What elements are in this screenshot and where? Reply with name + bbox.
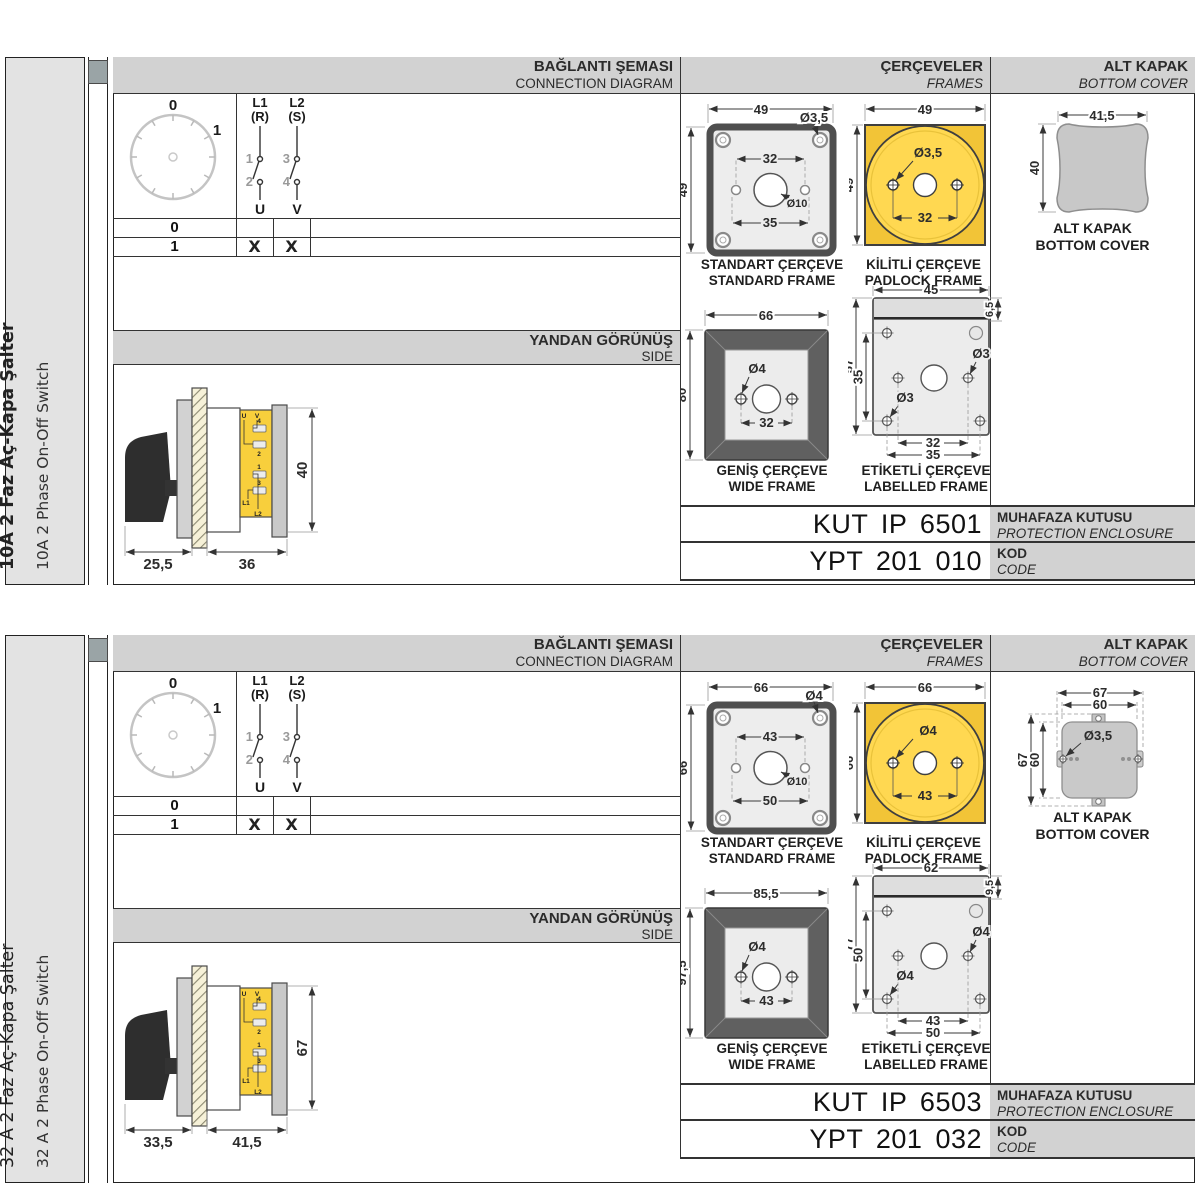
dim-hole-left: Ø4 bbox=[896, 968, 914, 983]
handle-shaft bbox=[165, 1058, 177, 1074]
header-frames-tr: ÇERÇEVELER bbox=[683, 635, 983, 654]
dim-hole: Ø3,5 bbox=[914, 145, 942, 160]
dim-hole: Ø4 bbox=[748, 361, 766, 376]
dial-pos-1: 1 bbox=[213, 700, 221, 717]
panel-slot-10a: 10A 2 Faz Aç-Kapa Şalter 10A 2 Phase On-… bbox=[5, 57, 1195, 585]
wide-frame-label: GENİŞ ÇERÇEVE WIDE FRAME bbox=[682, 1041, 862, 1073]
mounting-panel bbox=[192, 388, 207, 548]
dim-height: 49 bbox=[849, 178, 856, 192]
product-panel: 32 A 2 Faz Aç-Kapa Şalter 32 A 2 Phase O… bbox=[5, 635, 1195, 1183]
state-row-0-u bbox=[236, 218, 273, 237]
padlock-frame-drawing: 49 49 Ø3,5 32 bbox=[849, 97, 995, 269]
switch-handle bbox=[125, 1010, 171, 1100]
dim-strip: 9,5 bbox=[984, 880, 996, 895]
sv-4: 4 bbox=[257, 418, 261, 425]
dim-width: 66 bbox=[759, 308, 773, 323]
front-plate bbox=[177, 400, 192, 538]
center-hole bbox=[921, 943, 947, 969]
product-panel: 10A 2 Faz Aç-Kapa Şalter 10A 2 Phase On-… bbox=[5, 57, 1195, 585]
dim-width: 62 bbox=[924, 863, 938, 875]
phase-r-label: (R) bbox=[251, 109, 269, 124]
dim-inner-height: 60 bbox=[1027, 753, 1042, 767]
enclosure-meta-tr: MUHAFAZA KUTUSU bbox=[997, 510, 1195, 526]
code-meta-tr: KOD bbox=[997, 1124, 1195, 1140]
labelled-frame-label-en: LABELLED FRAME bbox=[851, 1057, 1001, 1073]
labelled-frame-label: ETİKETLİ ÇERÇEVE LABELLED FRAME bbox=[851, 463, 1001, 495]
dim-front: 25,5 bbox=[143, 556, 172, 573]
header-frames-en: FRAMES bbox=[683, 654, 983, 669]
dial-pos-0: 0 bbox=[169, 675, 177, 692]
end-cap bbox=[272, 405, 287, 537]
dim-width: 49 bbox=[754, 102, 768, 117]
wide-frame-label-en: WIDE FRAME bbox=[682, 1057, 862, 1073]
catalog-page: 10A 2 Faz Aç-Kapa Şalter 10A 2 Phase On-… bbox=[0, 0, 1200, 1200]
state-row-1-u: X bbox=[236, 237, 273, 256]
header-connection-tr: BAĞLANTI ŞEMASI bbox=[113, 635, 673, 654]
dial-diagram: 0 1 bbox=[113, 93, 236, 218]
dim-width: 66 bbox=[754, 680, 768, 695]
standard-frame-label-tr: STANDART ÇERÇEVE bbox=[682, 257, 862, 273]
state-row-0-v bbox=[273, 796, 310, 815]
enclosure-meta-tr: MUHAFAZA KUTUSU bbox=[997, 1088, 1195, 1104]
divider-line bbox=[113, 834, 680, 835]
header-frames-en: FRAMES bbox=[683, 76, 983, 91]
labelled-frame-drawing: 45 6,5 57 35 Ø3 Ø3 32 35 bbox=[848, 285, 1004, 467]
header-connection-tr: BAĞLANTI ŞEMASI bbox=[113, 57, 673, 76]
code-meta-tr: KOD bbox=[997, 546, 1195, 562]
dim-inner: 43 bbox=[759, 993, 773, 1008]
terminal-2: 2 bbox=[246, 752, 253, 767]
header-connection-en: CONNECTION DIAGRAM bbox=[113, 76, 673, 91]
label-strip-line bbox=[874, 317, 988, 320]
standard-frame-label: STANDART ÇERÇEVE STANDARD FRAME bbox=[682, 835, 862, 867]
dim-height: 40 bbox=[294, 462, 311, 479]
state-row-0-v bbox=[273, 218, 310, 237]
enclosure-code: KUT IP 6501 bbox=[680, 509, 990, 540]
side-hole bbox=[801, 764, 810, 773]
dim-inner: 43 bbox=[918, 788, 932, 803]
standard-frame-label-en: STANDARD FRAME bbox=[682, 851, 862, 867]
dim-center: Ø10 bbox=[787, 198, 808, 210]
side-view-header: YANDAN GÖRÜNÜŞ SIDE bbox=[113, 908, 680, 943]
labelled-frame-label-tr: ETİKETLİ ÇERÇEVE bbox=[851, 1041, 1001, 1057]
state-row-0-label: 0 bbox=[113, 796, 236, 815]
code-meta-en: CODE bbox=[997, 1140, 1195, 1155]
code-meta: KOD CODE bbox=[990, 543, 1195, 580]
phase-l1-label: L1 bbox=[252, 673, 267, 688]
labelled-frame-label: ETİKETLİ ÇERÇEVE LABELLED FRAME bbox=[851, 1041, 1001, 1073]
handle-shaft bbox=[165, 480, 177, 496]
output-u-label: U bbox=[255, 201, 265, 217]
center-hole bbox=[754, 752, 787, 785]
padlock-frame-label-tr: KİLİTLİ ÇERÇEVE bbox=[851, 835, 996, 851]
terminal-2: 2 bbox=[246, 174, 253, 189]
header-connection: BAĞLANTI ŞEMASI CONNECTION DIAGRAM bbox=[113, 57, 673, 93]
spine-strip bbox=[88, 635, 108, 1183]
center-hole bbox=[753, 963, 781, 991]
dim-width: 49 bbox=[918, 102, 932, 117]
label-strip bbox=[874, 877, 988, 896]
output-u-label: U bbox=[255, 779, 265, 795]
dim-inner: 43 bbox=[763, 729, 777, 744]
labelled-frame-drawing: 62 9,5 77 50 Ø4 Ø4 43 50 bbox=[848, 863, 1004, 1045]
side-view-header-en: SIDE bbox=[113, 928, 673, 942]
sv-2: 2 bbox=[257, 451, 261, 458]
wide-frame-drawing: 66 80 Ø4 32 bbox=[681, 303, 853, 470]
side-label-subtitle: 32 A 2 Phase On-Off Switch bbox=[34, 955, 52, 1168]
dim-height: 40 bbox=[1027, 161, 1042, 175]
dim-body: 36 bbox=[239, 556, 256, 573]
header-cover-en: BOTTOM COVER bbox=[993, 76, 1188, 91]
end-cap bbox=[272, 983, 287, 1115]
switch-handle bbox=[125, 432, 171, 522]
dim-center: Ø10 bbox=[787, 776, 808, 788]
side-label-subtitle: 10A 2 Phase On-Off Switch bbox=[34, 362, 52, 570]
bottom-cover-label: ALT KAPAK BOTTOM COVER bbox=[990, 809, 1195, 843]
product-code: YPT 201 032 bbox=[680, 1124, 990, 1155]
bottom-cover-label: ALT KAPAK BOTTOM COVER bbox=[990, 220, 1195, 254]
terminal-4: 4 bbox=[283, 174, 291, 189]
terminal-1: 1 bbox=[246, 729, 253, 744]
sv-l1: L1 bbox=[242, 500, 250, 507]
code-meta-en: CODE bbox=[997, 562, 1195, 577]
header-cover-tr: ALT KAPAK bbox=[993, 57, 1188, 76]
wide-frame-label-tr: GENİŞ ÇERÇEVE bbox=[682, 1041, 862, 1057]
state-row-1-v: X bbox=[273, 237, 310, 256]
standard-frame-drawing: 66 Ø4 66 43 Ø10 50 bbox=[681, 675, 853, 847]
center-hole bbox=[753, 385, 781, 413]
center-hole bbox=[914, 174, 937, 197]
side-view-header: YANDAN GÖRÜNÜŞ SIDE bbox=[113, 330, 680, 365]
spine-tab bbox=[88, 60, 108, 84]
sv-4: 4 bbox=[257, 996, 261, 1003]
dim-hole-right: Ø4 bbox=[972, 924, 990, 939]
spine-strip bbox=[88, 57, 108, 585]
header-frames-tr: ÇERÇEVELER bbox=[683, 57, 983, 76]
switch-body bbox=[207, 408, 240, 532]
side-hole bbox=[801, 186, 810, 195]
wide-frame-label-en: WIDE FRAME bbox=[682, 479, 862, 495]
padlock-frame-drawing: 66 66 Ø4 43 bbox=[849, 675, 995, 847]
dim-inner: 32 bbox=[759, 415, 773, 430]
padlock-frame-label-tr: KİLİTLİ ÇERÇEVE bbox=[851, 257, 996, 273]
bottom-cover-label-tr: ALT KAPAK bbox=[990, 220, 1195, 237]
contact-symbols bbox=[253, 126, 300, 200]
dim-hole: Ø3,5 bbox=[1084, 728, 1112, 743]
dim-height: 49 bbox=[681, 183, 690, 197]
sv-1: 1 bbox=[257, 1042, 261, 1049]
phase-s-label: (S) bbox=[288, 687, 305, 702]
side-view-header-en: SIDE bbox=[113, 350, 673, 364]
label-strip bbox=[874, 299, 988, 318]
product-code: YPT 201 010 bbox=[680, 546, 990, 577]
phase-l2-label: L2 bbox=[289, 673, 304, 688]
dim-outer: 50 bbox=[763, 793, 777, 808]
center-hole bbox=[754, 174, 787, 207]
terminal-3: 3 bbox=[283, 729, 290, 744]
state-row-1-label: 1 bbox=[113, 237, 236, 256]
dial-pos-1: 1 bbox=[213, 122, 221, 139]
terminal-3: 3 bbox=[283, 151, 290, 166]
mounting-panel bbox=[192, 966, 207, 1126]
dial-center bbox=[169, 731, 177, 739]
tab-hole bbox=[1096, 716, 1102, 722]
contact-diagram: L1 (R) L2 (S) 1 2 3 4 U V bbox=[236, 93, 316, 218]
output-v-label: V bbox=[292, 201, 302, 217]
header-cover-en: BOTTOM COVER bbox=[993, 654, 1188, 669]
standard-frame-label-en: STANDARD FRAME bbox=[682, 273, 862, 289]
terminal-4: 4 bbox=[283, 752, 291, 767]
code-meta: KOD CODE bbox=[990, 1121, 1195, 1158]
phase-l1-label: L1 bbox=[252, 95, 267, 110]
side-view-header-tr: YANDAN GÖRÜNÜŞ bbox=[113, 909, 673, 928]
header-cover: ALT KAPAK BOTTOM COVER bbox=[993, 57, 1188, 93]
side-hole bbox=[732, 186, 741, 195]
dim-hole-left: Ø3 bbox=[896, 390, 913, 405]
tab-hole bbox=[1096, 799, 1102, 805]
sv-3: 3 bbox=[257, 1058, 261, 1065]
dim-hole-right: Ø3 bbox=[972, 346, 989, 361]
side-label-title: 10A 2 Faz Aç-Kapa Şalter bbox=[0, 322, 18, 570]
contact-symbols bbox=[253, 704, 300, 778]
dim-height: 66 bbox=[849, 756, 856, 770]
side-hole bbox=[732, 764, 741, 773]
sv-2: 2 bbox=[257, 1029, 261, 1036]
dim-height: 97,5 bbox=[681, 960, 689, 985]
bottom-cover-label-tr: ALT KAPAK bbox=[990, 809, 1195, 826]
wide-frame-label-tr: GENİŞ ÇERÇEVE bbox=[682, 463, 862, 479]
labelled-frame-label-tr: ETİKETLİ ÇERÇEVE bbox=[851, 463, 1001, 479]
side-view-drawing: U V 4 2 1 3 L1 L2 67 33,5 41,5 bbox=[115, 963, 345, 1153]
side-label-bar: 10A 2 Faz Aç-Kapa Şalter 10A 2 Phase On-… bbox=[5, 57, 85, 585]
terminal-1: 1 bbox=[246, 151, 253, 166]
spine-tab bbox=[88, 638, 108, 662]
header-frames: ÇERÇEVELER FRAMES bbox=[683, 635, 983, 671]
header-connection: BAĞLANTI ŞEMASI CONNECTION DIAGRAM bbox=[113, 635, 673, 671]
side-view-header-tr: YANDAN GÖRÜNÜŞ bbox=[113, 331, 673, 350]
dim-outer: 35 bbox=[926, 447, 940, 462]
dim-inner-height: 35 bbox=[851, 370, 866, 384]
sv-l2: L2 bbox=[254, 511, 262, 518]
dim-hole: Ø4 bbox=[748, 939, 766, 954]
dim-width: 45 bbox=[924, 285, 938, 297]
dial-pos-0: 0 bbox=[169, 97, 177, 114]
dim-width: 66 bbox=[918, 680, 932, 695]
dim-hole: Ø4 bbox=[919, 723, 937, 738]
dim-width: 41,5 bbox=[1089, 109, 1114, 123]
wide-frame-label: GENİŞ ÇERÇEVE WIDE FRAME bbox=[682, 463, 862, 495]
cover-shape bbox=[1057, 124, 1148, 212]
header-frames: ÇERÇEVELER FRAMES bbox=[683, 57, 983, 93]
phase-l2-label: L2 bbox=[289, 95, 304, 110]
side-label-title: 32 A 2 Faz Aç-Kapa Şalter bbox=[0, 944, 18, 1168]
output-v-label: V bbox=[292, 779, 302, 795]
dial-center bbox=[169, 153, 177, 161]
phase-r-label: (R) bbox=[251, 687, 269, 702]
dial-diagram: 0 1 bbox=[113, 671, 236, 796]
standard-frame-label-tr: STANDART ÇERÇEVE bbox=[682, 835, 862, 851]
dim-front: 33,5 bbox=[143, 1134, 172, 1151]
divider-line bbox=[680, 579, 1195, 581]
enclosure-meta-en: PROTECTION ENCLOSURE bbox=[997, 1104, 1195, 1119]
front-plate bbox=[177, 978, 192, 1116]
dim-hole: Ø4 bbox=[805, 688, 823, 703]
sv-l2: L2 bbox=[254, 1089, 262, 1096]
dim-outer: 35 bbox=[763, 215, 777, 230]
state-row-1-v: X bbox=[273, 815, 310, 834]
standard-frame-label: STANDART ÇERÇEVE STANDARD FRAME bbox=[682, 257, 862, 289]
dim-width: 85,5 bbox=[753, 886, 778, 901]
sv-u: U bbox=[242, 413, 247, 420]
dim-body: 41,5 bbox=[232, 1134, 261, 1151]
phase-s-label: (S) bbox=[288, 109, 305, 124]
dim-inner-height: 50 bbox=[851, 948, 866, 962]
dim-height: 66 bbox=[681, 761, 690, 775]
panel-slot-32a: 32 A 2 Faz Aç-Kapa Şalter 32 A 2 Phase O… bbox=[5, 635, 1195, 1183]
center-hole bbox=[921, 365, 947, 391]
enclosure-meta: MUHAFAZA KUTUSU PROTECTION ENCLOSURE bbox=[990, 507, 1195, 542]
dim-hole: Ø3,5 bbox=[800, 110, 828, 125]
labelled-frame-label-en: LABELLED FRAME bbox=[851, 479, 1001, 495]
standard-frame-drawing: 49 Ø3,5 49 32 Ø10 35 bbox=[681, 97, 853, 269]
dim-strip: 6,5 bbox=[984, 302, 996, 317]
sv-3: 3 bbox=[257, 480, 261, 487]
divider-line bbox=[680, 1157, 1195, 1159]
enclosure-meta-en: PROTECTION ENCLOSURE bbox=[997, 526, 1195, 541]
switch-body bbox=[207, 986, 240, 1110]
state-row-1-u: X bbox=[236, 815, 273, 834]
dim-outer: 50 bbox=[926, 1025, 940, 1040]
dim-inner: 32 bbox=[918, 210, 932, 225]
sv-1: 1 bbox=[257, 464, 261, 471]
dim-height: 80 bbox=[681, 388, 689, 402]
dim-height: 67 bbox=[294, 1040, 311, 1057]
sv-l1: L1 bbox=[242, 1078, 250, 1085]
contact-diagram: L1 (R) L2 (S) 1 2 3 4 U V bbox=[236, 671, 316, 796]
state-row-1-label: 1 bbox=[113, 815, 236, 834]
divider-line bbox=[113, 256, 680, 257]
bottom-cover-label-en: BOTTOM COVER bbox=[990, 826, 1195, 843]
dim-inner: 32 bbox=[763, 151, 777, 166]
header-cover: ALT KAPAK BOTTOM COVER bbox=[993, 635, 1188, 671]
enclosure-meta: MUHAFAZA KUTUSU PROTECTION ENCLOSURE bbox=[990, 1085, 1195, 1120]
sv-u: U bbox=[242, 991, 247, 998]
bottom-cover-label-en: BOTTOM COVER bbox=[990, 237, 1195, 254]
side-label-bar: 32 A 2 Faz Aç-Kapa Şalter 32 A 2 Phase O… bbox=[5, 635, 85, 1183]
dim-inner-width: 60 bbox=[1093, 697, 1107, 712]
bottom-cover-drawing: 67 60 67 60 Ø3,5 bbox=[1005, 683, 1190, 811]
state-row-0-label: 0 bbox=[113, 218, 236, 237]
header-connection-en: CONNECTION DIAGRAM bbox=[113, 654, 673, 669]
center-hole bbox=[914, 752, 937, 775]
wide-frame-drawing: 85,5 97,5 Ø4 43 bbox=[681, 881, 853, 1048]
side-view-drawing: U V 4 2 1 3 L1 L2 40 25,5 36 bbox=[115, 385, 345, 575]
state-row-0-u bbox=[236, 796, 273, 815]
enclosure-code: KUT IP 6503 bbox=[680, 1087, 990, 1118]
header-cover-tr: ALT KAPAK bbox=[993, 635, 1188, 654]
label-strip-line bbox=[874, 895, 988, 898]
